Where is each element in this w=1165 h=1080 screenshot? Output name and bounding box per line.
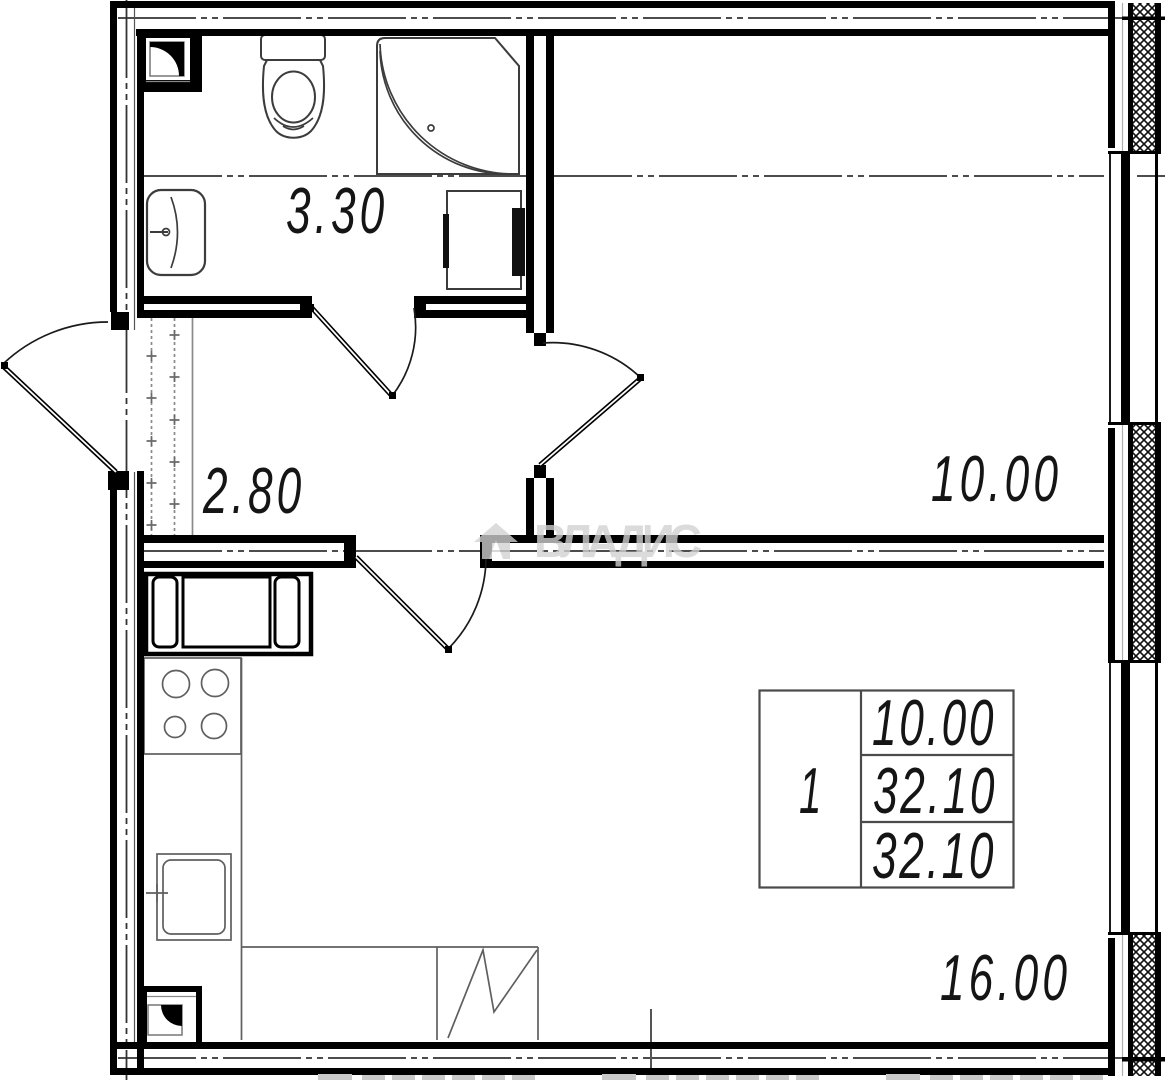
svg-text:3.30: 3.30 [286,175,388,248]
svg-text:2.80: 2.80 [202,455,305,528]
svg-text:10.00: 10.00 [931,443,1062,516]
svg-text:32.10: 32.10 [872,820,996,893]
svg-text:16.00: 16.00 [940,942,1071,1015]
svg-text:32.10: 32.10 [873,755,997,828]
svg-text:ВЛАДИС: ВЛАДИС [534,515,702,567]
svg-text:10.00: 10.00 [872,687,996,760]
svg-text:1: 1 [799,755,821,827]
